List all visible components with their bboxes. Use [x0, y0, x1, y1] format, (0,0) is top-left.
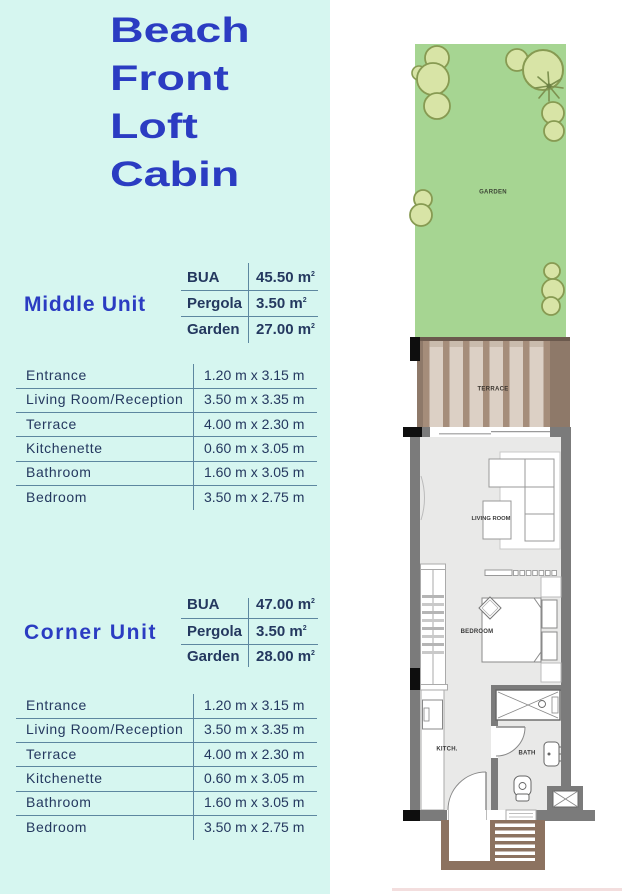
svg-text:TERRACE: TERRACE: [477, 387, 508, 393]
svg-text:GARDEN: GARDEN: [479, 190, 507, 196]
svg-text:BATH: BATH: [518, 751, 535, 757]
svg-text:LIVING ROOM: LIVING ROOM: [472, 516, 511, 522]
svg-text:BEDROOM: BEDROOM: [461, 629, 494, 635]
svg-text:KITCH.: KITCH.: [436, 747, 457, 753]
